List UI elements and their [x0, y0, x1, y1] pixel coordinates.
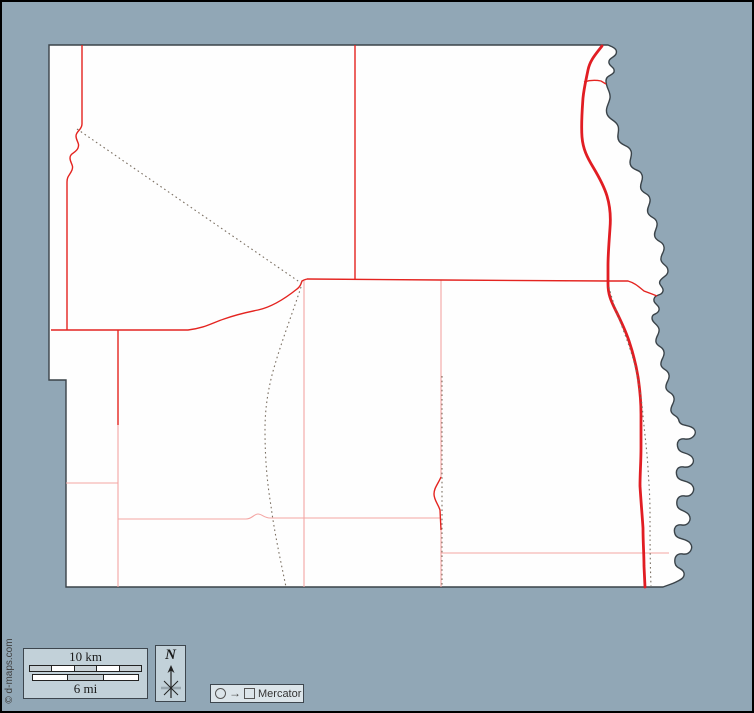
map-outline-river-boundary — [49, 45, 695, 587]
north-arrow-panel: N — [155, 645, 186, 702]
projection-arrow-icon: → — [229, 687, 241, 699]
scale-bar-mi — [32, 674, 139, 681]
map-screen: 10 km 6 mi N → Mercator © d-maps.com — [0, 0, 754, 713]
projection-label: Mercator — [258, 688, 301, 700]
flat-map-square-icon — [244, 688, 255, 699]
scale-bar-km — [29, 665, 142, 672]
globe-circle-icon — [215, 688, 226, 699]
dmaps-credit: © d-maps.com — [3, 635, 17, 707]
scale-bar-panel: 10 km 6 mi — [23, 648, 148, 699]
north-label: N — [165, 647, 176, 663]
compass-rose-icon — [158, 663, 184, 701]
scale-mi-label: 6 mi — [74, 682, 97, 696]
scale-km-label: 10 km — [69, 650, 102, 664]
projection-panel: → Mercator — [210, 684, 304, 703]
outline-map-canvas — [0, 0, 754, 713]
